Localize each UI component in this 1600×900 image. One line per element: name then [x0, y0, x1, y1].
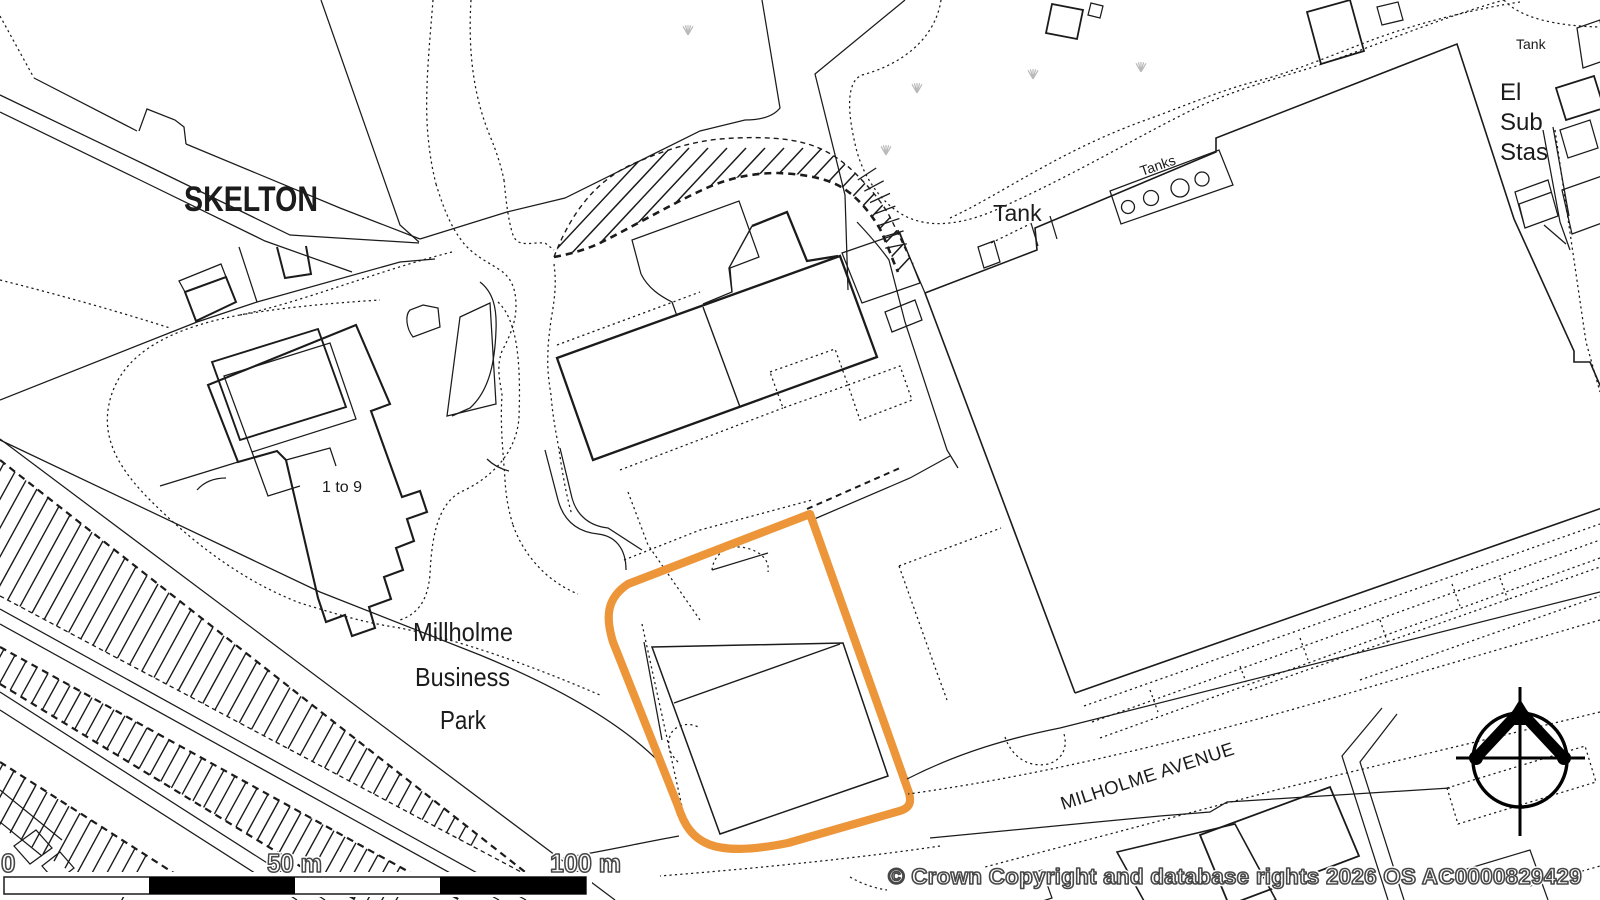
svg-text:Millholme: Millholme	[413, 617, 513, 647]
svg-text:Stas: Stas	[1500, 139, 1548, 166]
svg-text:SKELTON: SKELTON	[184, 180, 318, 219]
svg-text:Business: Business	[415, 662, 510, 692]
svg-text:Tank: Tank	[1516, 36, 1547, 52]
svg-text:Sub: Sub	[1500, 109, 1543, 136]
svg-text:50 m: 50 m	[267, 848, 322, 878]
svg-text:100 m: 100 m	[550, 848, 621, 878]
svg-text:© Crown Copyright and database: © Crown Copyright and database rights 20…	[888, 864, 1582, 889]
svg-text:Tank: Tank	[993, 200, 1042, 226]
svg-text:0: 0	[1, 848, 15, 878]
svg-text:Park: Park	[440, 705, 487, 735]
svg-text:El: El	[1500, 79, 1521, 106]
svg-text:1 to 9: 1 to 9	[322, 479, 362, 496]
